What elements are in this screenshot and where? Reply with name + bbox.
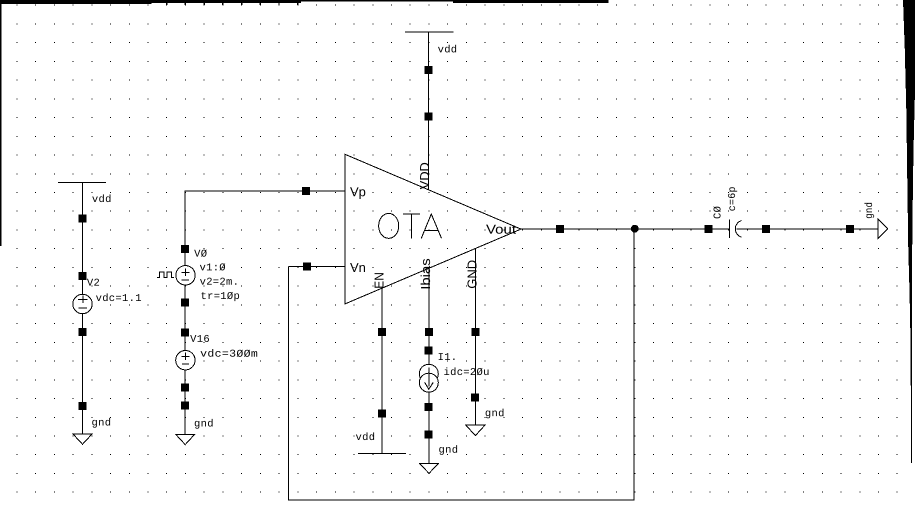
svg-text:Vout: Vout	[486, 222, 516, 237]
svg-text:idc=2Øu: idc=2Øu	[443, 367, 489, 379]
svg-text:V2: V2	[87, 278, 100, 290]
svg-text:Vp: Vp	[350, 184, 366, 199]
svg-text:gnd: gnd	[194, 418, 214, 430]
svg-text:VDD: VDD	[417, 162, 432, 189]
svg-text:vdd: vdd	[92, 194, 112, 206]
svg-text:vdd: vdd	[355, 432, 375, 444]
svg-text:Vn: Vn	[350, 260, 366, 275]
svg-text:gnd: gnd	[864, 202, 876, 219]
svg-text:gnd: gnd	[485, 408, 505, 420]
svg-text:gnd: gnd	[91, 417, 111, 429]
svg-text:gnd: gnd	[438, 445, 458, 457]
svg-text:tr=1Øp: tr=1Øp	[200, 291, 240, 303]
svg-text:I1.: I1.	[438, 352, 458, 364]
svg-text:V16: V16	[190, 334, 210, 346]
svg-text:VØ: VØ	[194, 249, 207, 261]
svg-text:v1:Ø: v1:Ø	[199, 262, 225, 274]
svg-text:vdc=1.1: vdc=1.1	[96, 293, 142, 305]
svg-text:CØ: CØ	[713, 206, 725, 219]
svg-text:vdd: vdd	[438, 44, 458, 56]
svg-text:GND: GND	[465, 260, 480, 289]
svg-text:c=6p: c=6p	[727, 186, 739, 211]
svg-text:Ibias: Ibias	[418, 258, 433, 290]
svg-text:EN: EN	[372, 272, 387, 289]
svg-text:vdc=3ØØm: vdc=3ØØm	[200, 349, 258, 361]
svg-text:v2=2m.: v2=2m.	[200, 277, 240, 289]
